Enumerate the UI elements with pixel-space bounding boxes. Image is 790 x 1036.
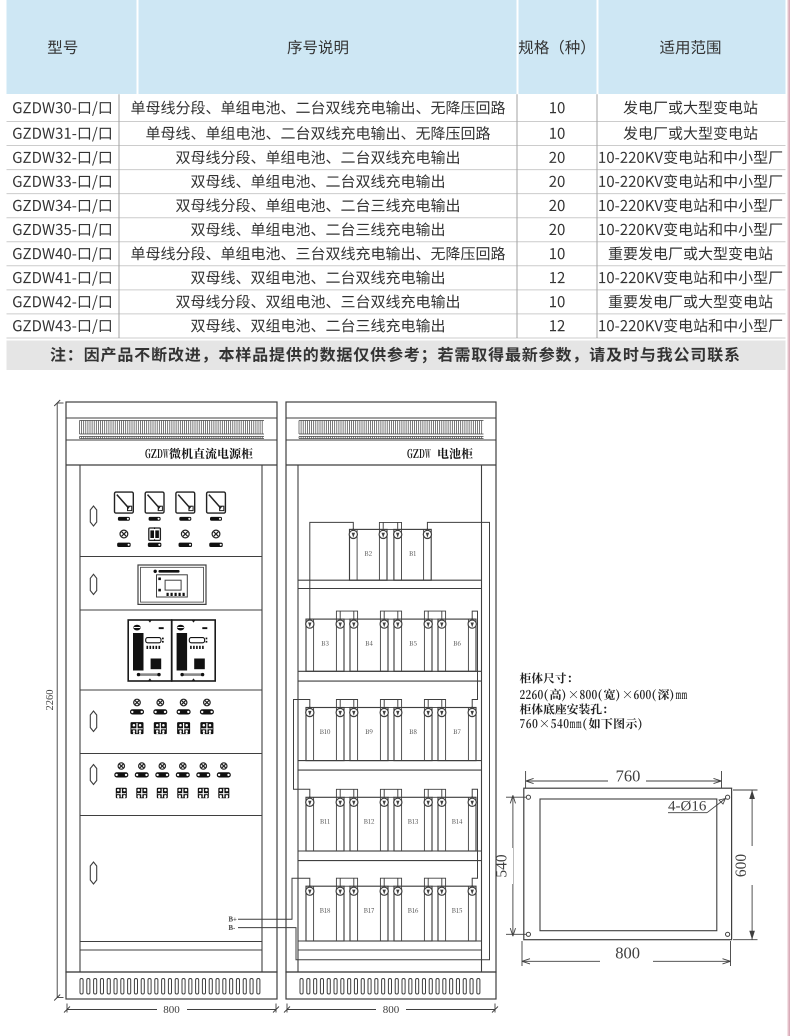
svg-text:600: 600 [733,854,750,878]
svg-text:B+: B+ [229,917,238,924]
svg-text:4-Ø16: 4-Ø16 [668,799,707,815]
svg-text:800: 800 [383,1004,400,1016]
svg-text:760: 760 [616,766,641,785]
svg-text:B-: B- [229,925,237,932]
svg-text:2260: 2260 [45,690,56,711]
svg-text:540: 540 [493,854,510,878]
svg-text:800: 800 [615,944,640,963]
svg-text:800: 800 [163,1004,180,1016]
